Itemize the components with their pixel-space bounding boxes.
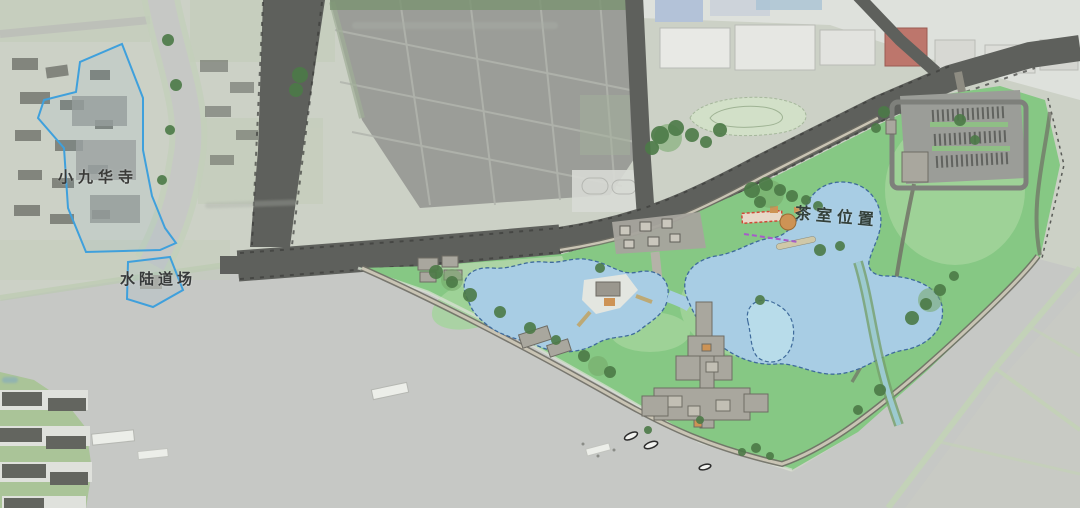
road-branch-north <box>634 0 646 218</box>
factory-yard <box>572 170 644 212</box>
label-temple: 小九华寺 <box>58 166 138 187</box>
riverside-village <box>0 372 92 508</box>
road-dock-end <box>220 256 248 274</box>
site-plan-map <box>0 0 1080 508</box>
illegible-watermark-text <box>2 377 18 383</box>
site-plan-screenshot: 小九华寺 水陆道场 茶室位置 <box>0 0 1080 508</box>
illegible-watermark-text <box>352 22 558 29</box>
label-ritual-ground: 水陆道场 <box>120 268 196 289</box>
parking-service-building <box>902 152 928 182</box>
